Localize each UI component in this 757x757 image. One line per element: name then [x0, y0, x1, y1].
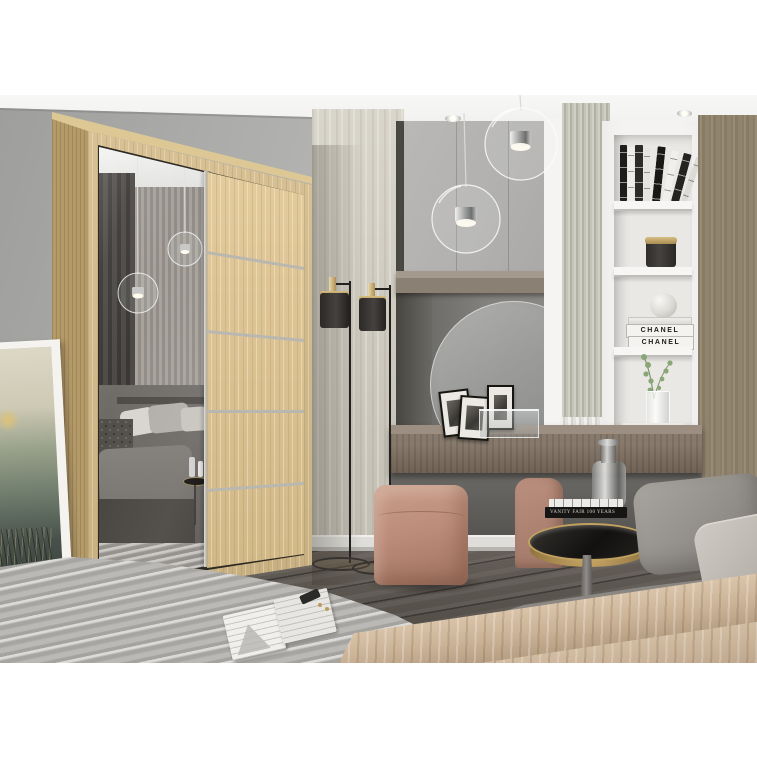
vase-neck [601, 445, 616, 463]
glass-vase-small [646, 391, 670, 427]
floor-lamp-arm [335, 283, 351, 285]
book-spine [635, 145, 643, 201]
white-margin-top [0, 0, 757, 95]
glass-display-box [479, 409, 539, 438]
magazine-image [231, 621, 270, 656]
blush-cube-pouf [374, 485, 468, 585]
book-spine [628, 147, 634, 201]
product-photo-stage: CHANEL CHANEL [0, 0, 757, 757]
wardrobe-mirror-door [99, 147, 207, 585]
decor-sphere [650, 293, 677, 318]
vase-lip [598, 439, 619, 446]
art-gold-accent [0, 408, 21, 431]
ceiling-downlight [445, 115, 461, 122]
white-margin-bottom [0, 663, 757, 757]
candle-brass-lid [645, 237, 677, 244]
bedroom-photo: CHANEL CHANEL [0, 95, 757, 663]
shelf-board [614, 201, 692, 211]
pouf-seam [378, 511, 464, 522]
floor-lamp-shade [359, 298, 386, 331]
books-row [618, 143, 694, 201]
floor-lamp-arm [374, 288, 391, 290]
gold-keys [325, 607, 329, 611]
shelf-board [614, 267, 692, 277]
book-spine [620, 145, 627, 201]
candle-jar [646, 241, 676, 267]
wardrobe-wall-shadow [312, 145, 362, 585]
table-book-black: VANITY FAIR 100 YEARS [545, 507, 627, 518]
floor-lamp-shade [320, 293, 349, 328]
gold-keys [318, 603, 322, 607]
mirror-glass-sheen [99, 147, 207, 585]
console-grain [390, 434, 702, 473]
floor-lamp-pole [349, 281, 351, 563]
book-spine [644, 148, 650, 201]
wardrobe-oak-door [207, 172, 304, 568]
glass-globe-pendants [380, 95, 610, 325]
ceiling-downlight [677, 110, 692, 117]
wood-panel-right [698, 115, 757, 497]
